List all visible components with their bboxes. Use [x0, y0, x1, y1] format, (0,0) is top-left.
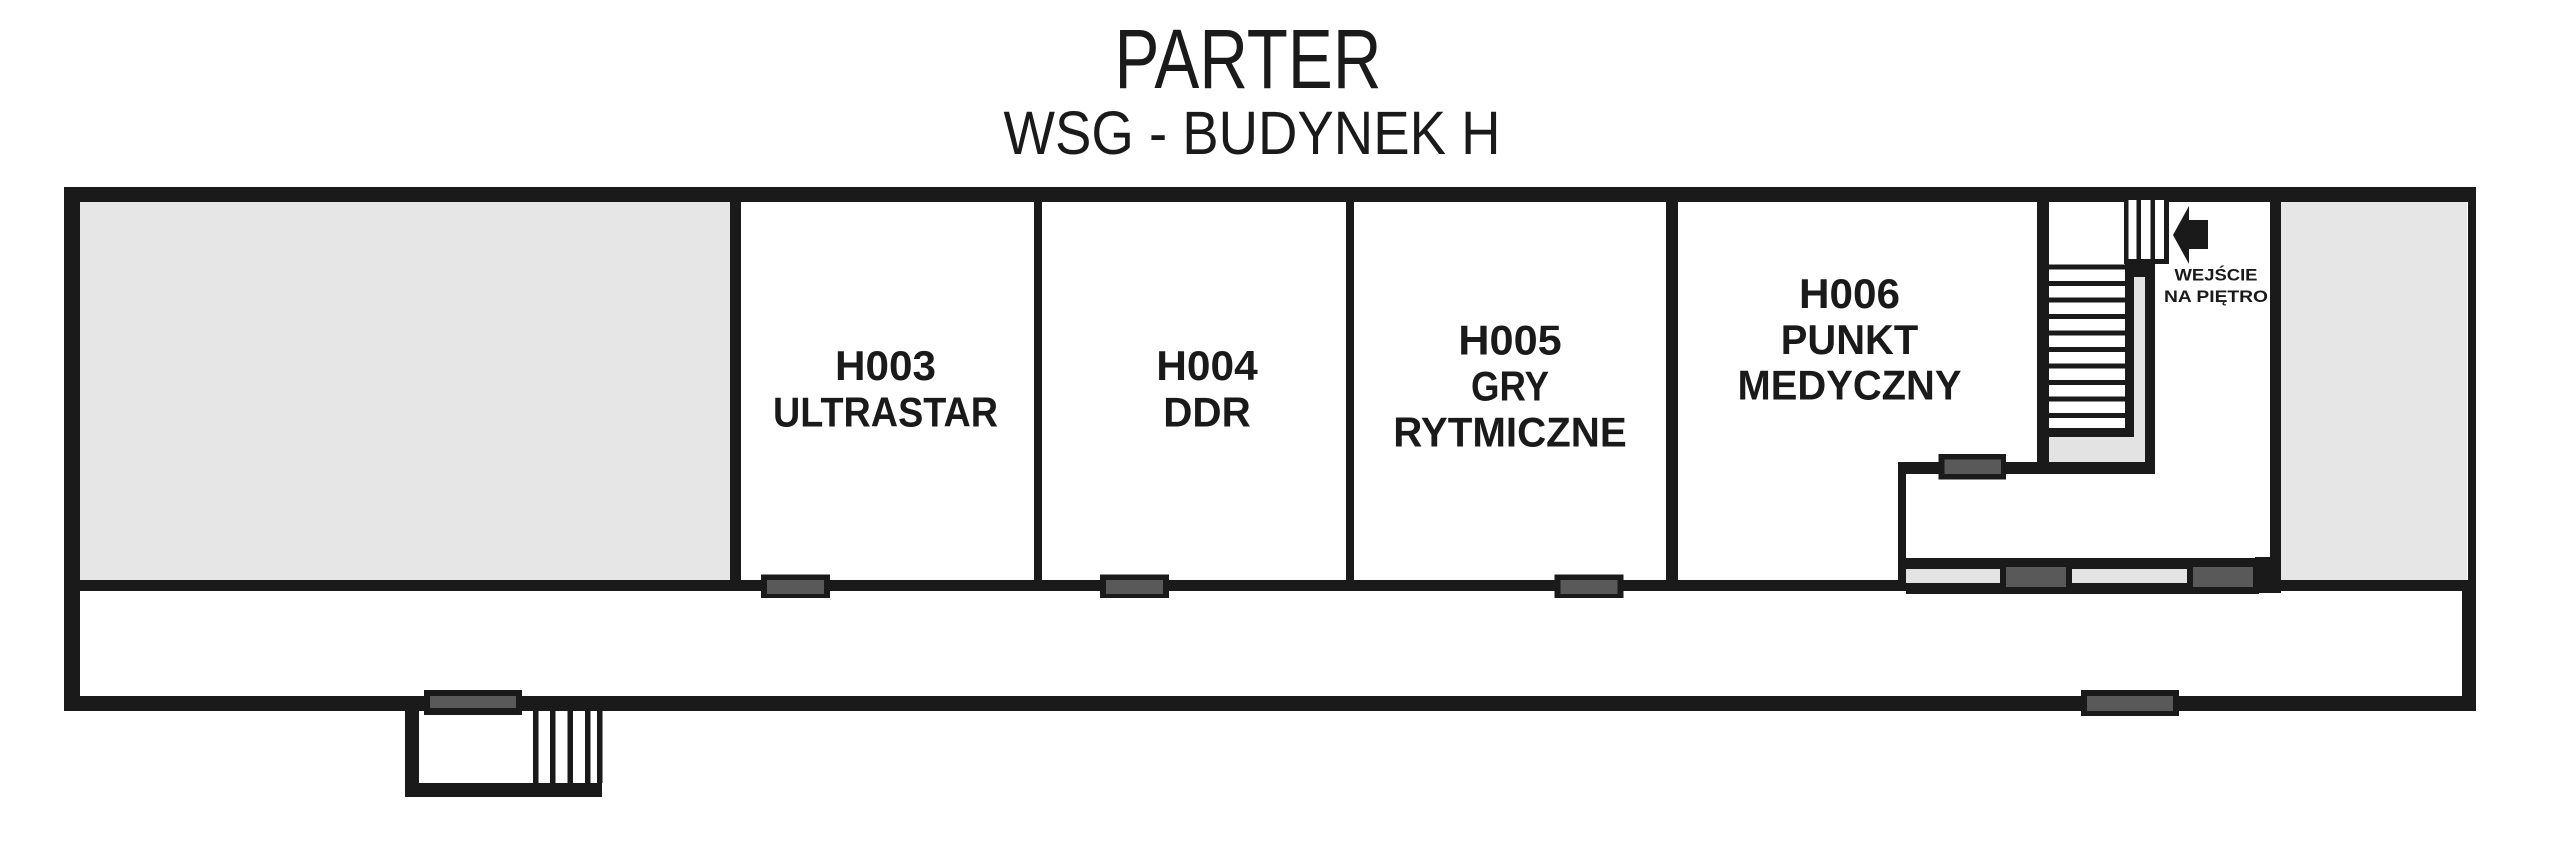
svg-text:DDR: DDR [1163, 389, 1251, 436]
svg-text:H003: H003 [835, 342, 936, 389]
svg-text:PARTER: PARTER [1115, 12, 1382, 106]
svg-text:H004: H004 [1156, 342, 1258, 389]
svg-text:H005: H005 [1458, 317, 1562, 364]
svg-text:H006: H006 [1799, 270, 1900, 317]
svg-text:WSG - BUDYNEK H: WSG - BUDYNEK H [1004, 99, 1501, 167]
svg-text:MEDYCZNY: MEDYCZNY [1738, 362, 1962, 409]
svg-text:WEJŚCIE: WEJŚCIE [2175, 266, 2258, 285]
svg-text:GRY: GRY [1471, 363, 1549, 410]
svg-text:PUNKT: PUNKT [1781, 316, 1919, 363]
svg-text:RYTMICZNE: RYTMICZNE [1393, 409, 1627, 456]
svg-text:ULTRASTAR: ULTRASTAR [773, 389, 998, 436]
svg-text:NA PIĘTRO: NA PIĘTRO [2164, 287, 2268, 306]
